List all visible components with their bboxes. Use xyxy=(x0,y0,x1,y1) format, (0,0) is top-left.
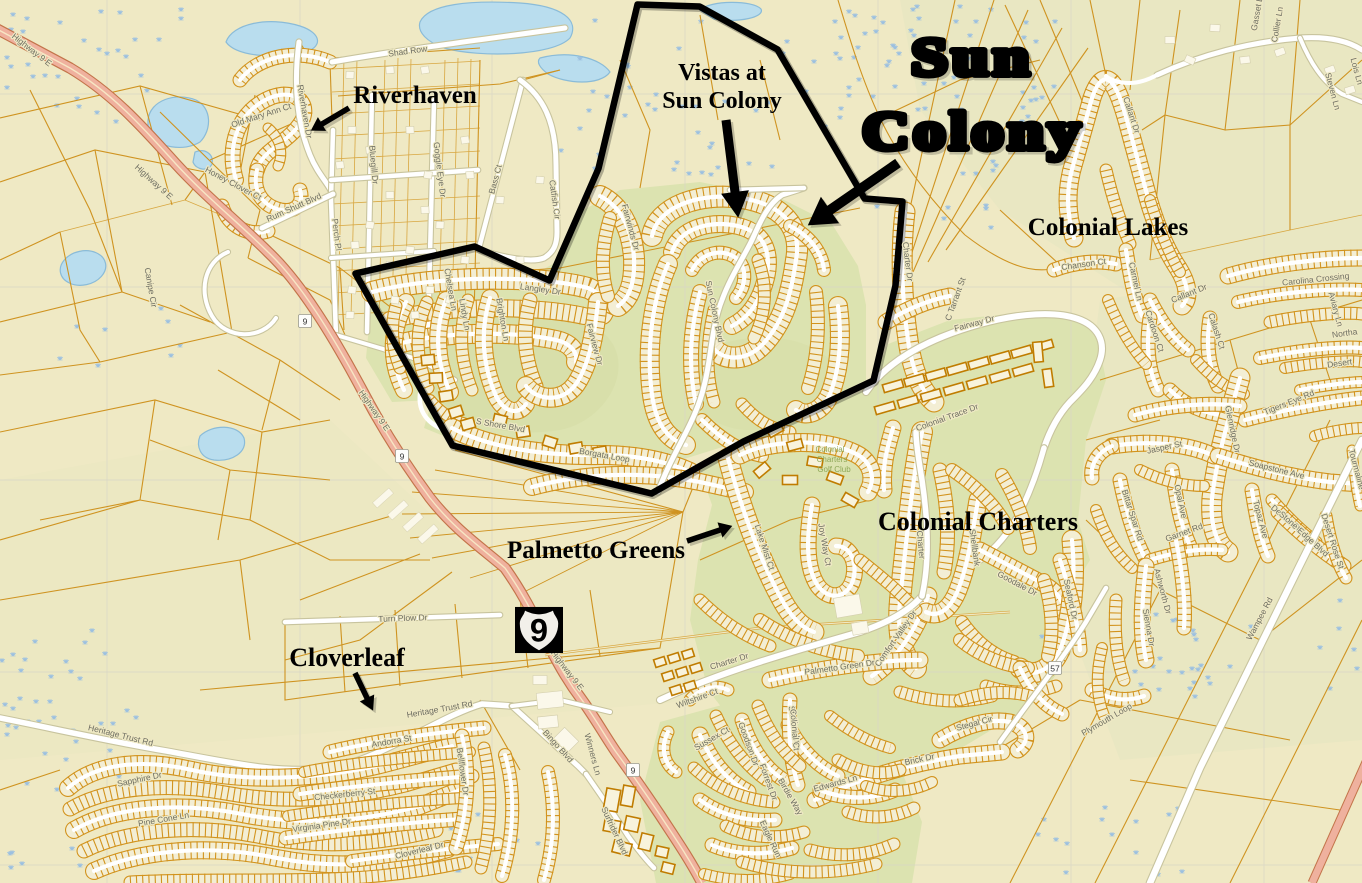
svg-text:Palmetto Greens: Palmetto Greens xyxy=(507,537,685,564)
svg-text:9: 9 xyxy=(631,766,636,776)
svg-text:Sun: Sun xyxy=(911,27,1033,87)
svg-text:Sun Colony: Sun Colony xyxy=(662,88,781,114)
svg-text:Cloverleaf: Cloverleaf xyxy=(289,643,405,672)
svg-text:Colonial Lakes: Colonial Lakes xyxy=(1028,214,1189,241)
svg-text:Turn Plow Dr: Turn Plow Dr xyxy=(378,612,428,624)
svg-text:Colonial: Colonial xyxy=(816,445,845,454)
svg-text:Colonial Charters: Colonial Charters xyxy=(878,507,1078,536)
svg-text:Vistas at: Vistas at xyxy=(678,60,766,86)
svg-text:9: 9 xyxy=(303,317,308,327)
svg-text:57: 57 xyxy=(1050,664,1060,674)
svg-text:9: 9 xyxy=(530,612,548,649)
svg-text:Golf Club: Golf Club xyxy=(817,465,851,474)
svg-text:Charters: Charters xyxy=(817,455,848,464)
svg-text:Riverhaven: Riverhaven xyxy=(353,82,477,109)
svg-text:Colony: Colony xyxy=(862,101,1084,161)
svg-text:9: 9 xyxy=(400,452,405,462)
